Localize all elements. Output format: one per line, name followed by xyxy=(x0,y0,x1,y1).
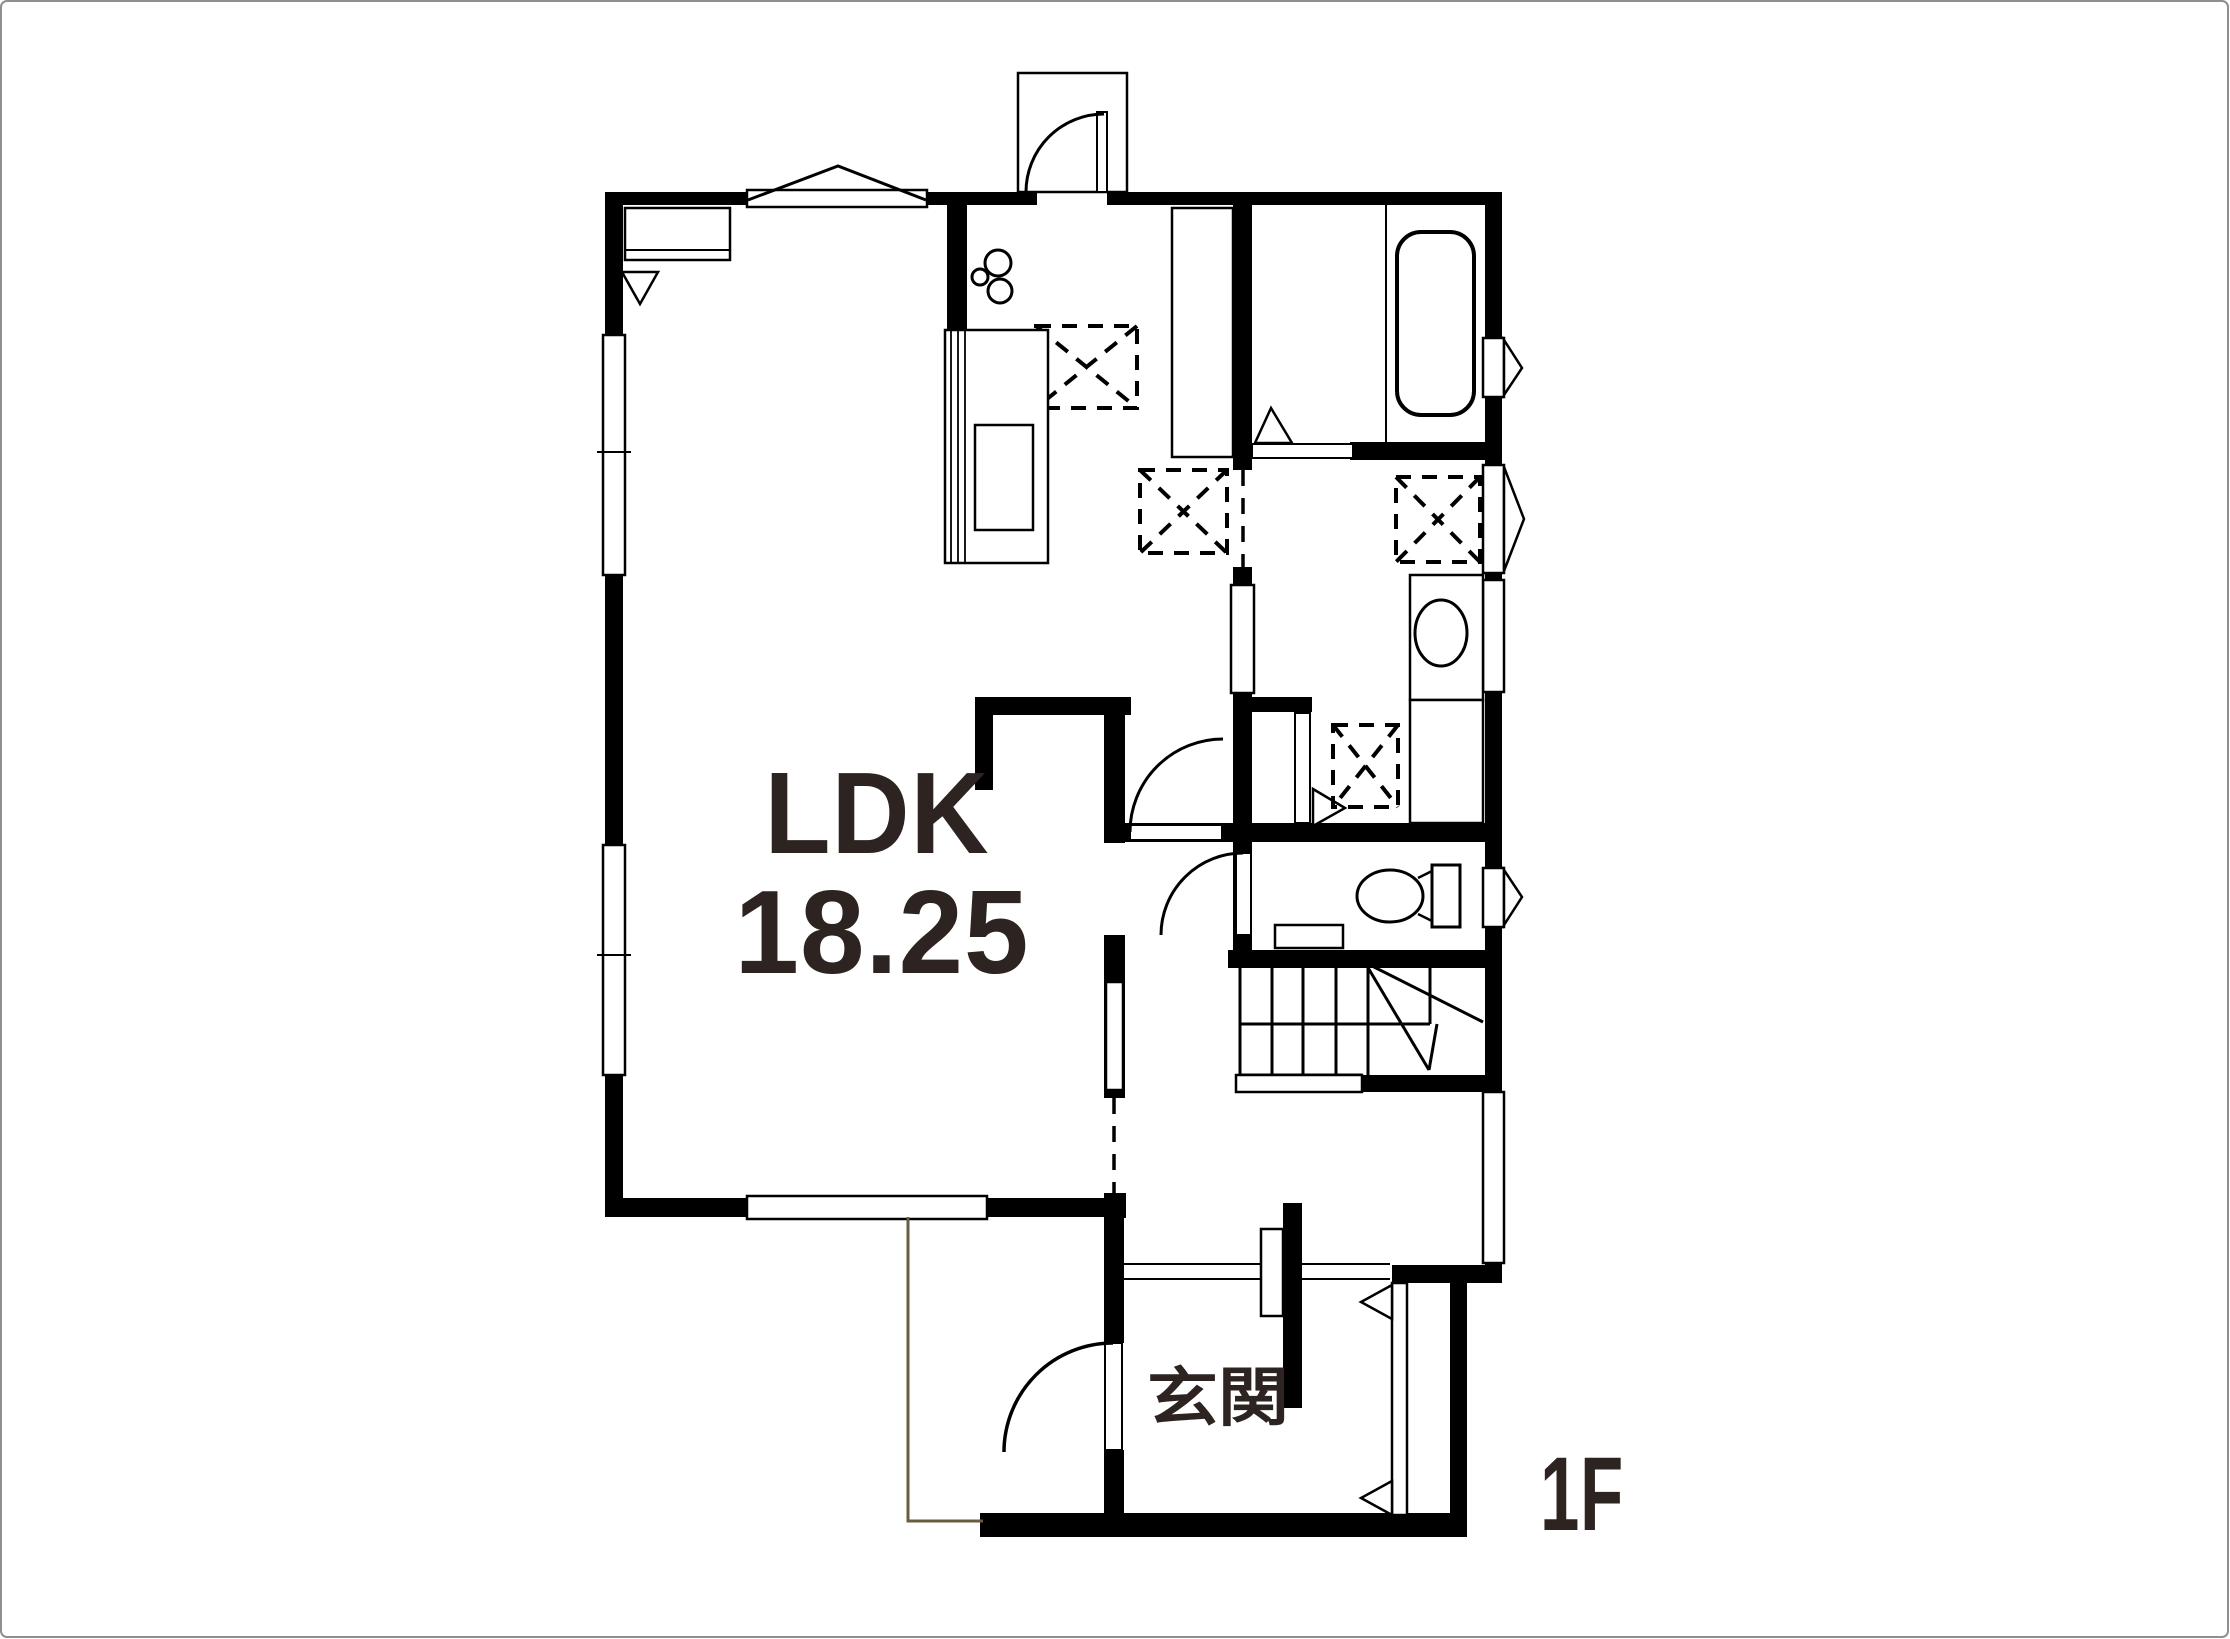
washbasin-bowl xyxy=(1415,600,1467,666)
window-left-lower xyxy=(603,845,625,1075)
wall-stairs-top xyxy=(1228,950,1502,968)
bathroom-door-track xyxy=(1252,444,1353,458)
kitchen-counter xyxy=(945,330,1048,563)
ldk-entrance-door-leaf xyxy=(1105,1343,1122,1450)
window-toilet xyxy=(1483,868,1504,927)
toilet-bowl xyxy=(1357,870,1423,922)
washroom-pocket-panel xyxy=(1295,713,1310,823)
back-door-leaf xyxy=(1097,112,1107,192)
entrance-label: 玄関 xyxy=(1147,1362,1289,1434)
window-left-upper xyxy=(603,335,625,575)
wall-kitchen-stub xyxy=(947,205,967,330)
vanity-sink xyxy=(1410,575,1483,823)
bathtub xyxy=(1397,232,1474,415)
wall-ldk-hall-upper xyxy=(1104,697,1125,843)
floor-plan-page: LDK 18.25 玄関 1F xyxy=(0,0,2230,1639)
stairs-first-step xyxy=(1236,1075,1362,1092)
wall-bath-front xyxy=(1350,442,1485,460)
window-washroom-upper xyxy=(1483,465,1504,573)
ldk-area-label: 18.25 xyxy=(735,866,1030,999)
window-hall-right xyxy=(1483,1092,1504,1263)
wall-entrance-bottom xyxy=(980,1513,1467,1537)
washroom-sliding-panel xyxy=(1231,585,1254,693)
toilet-door-leaf xyxy=(1236,853,1251,935)
window-ldk-bottom xyxy=(747,1196,987,1219)
corridor-door-leaf xyxy=(1130,825,1222,840)
front-door-panel xyxy=(1392,1283,1407,1515)
floor-indicator-label: 1F xyxy=(1540,1436,1624,1553)
wall-entrance-right xyxy=(1450,1283,1467,1537)
wall-kitchen-washroom xyxy=(1233,192,1252,470)
window-top-bay xyxy=(747,190,927,207)
wall-entrance-left-upper xyxy=(1104,1198,1124,1343)
ldk-room-label: LDK xyxy=(765,748,990,878)
toilet xyxy=(1357,865,1460,927)
wall-ldk-nook-h xyxy=(975,697,1131,715)
toilet-cabinet xyxy=(1275,925,1343,948)
shoe-cabinet xyxy=(1261,1229,1283,1316)
window-hall-interior xyxy=(1106,982,1123,1090)
kitchen-sink xyxy=(975,425,1033,530)
kitchen-cupboard xyxy=(1172,208,1233,457)
window-vanity xyxy=(1483,580,1504,692)
wall-under-stairs xyxy=(1362,1075,1502,1092)
wall-pocket-cap xyxy=(1233,697,1312,712)
wall-entrance-jog xyxy=(1392,1265,1502,1283)
window-bathroom xyxy=(1483,338,1504,397)
toilet-tank xyxy=(1432,865,1460,927)
